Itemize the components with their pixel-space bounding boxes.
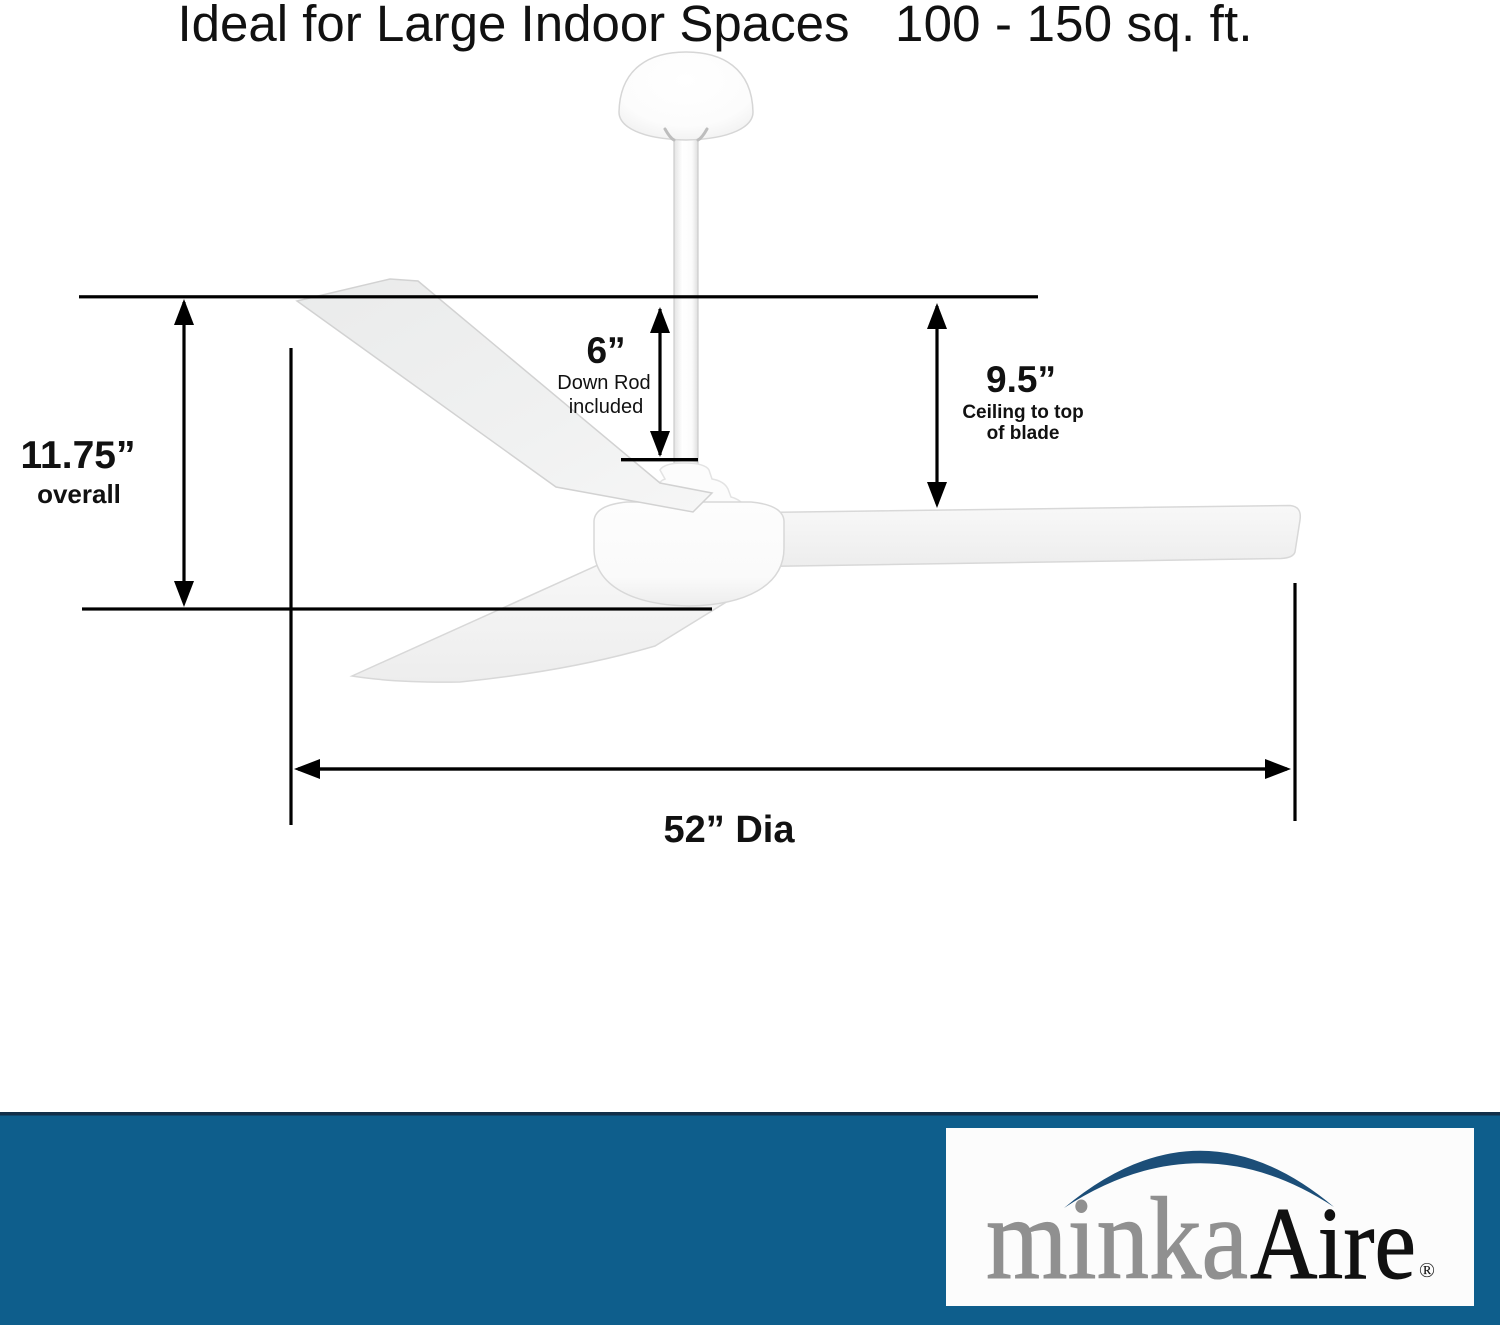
svg-text:100 - 150 sq. ft.: 100 - 150 sq. ft.: [895, 0, 1253, 52]
svg-text:11.75”: 11.75”: [21, 434, 136, 477]
svg-text:Ideal for Large Indoor Spaces: Ideal for Large Indoor Spaces: [178, 0, 850, 52]
svg-text:Ceiling to top: Ceiling to top: [962, 402, 1083, 423]
svg-text:Aire: Aire: [1250, 1187, 1416, 1301]
svg-text:minka: minka: [986, 1173, 1248, 1304]
svg-text:®: ®: [1419, 1258, 1435, 1282]
svg-text:Down Rod: Down Rod: [557, 372, 650, 394]
svg-text:6”: 6”: [586, 330, 625, 371]
svg-text:9.5”: 9.5”: [986, 359, 1056, 400]
svg-text:52” Dia: 52” Dia: [664, 809, 796, 851]
svg-text:overall: overall: [37, 479, 121, 509]
svg-text:included: included: [569, 396, 644, 418]
svg-text:of blade: of blade: [987, 423, 1060, 444]
